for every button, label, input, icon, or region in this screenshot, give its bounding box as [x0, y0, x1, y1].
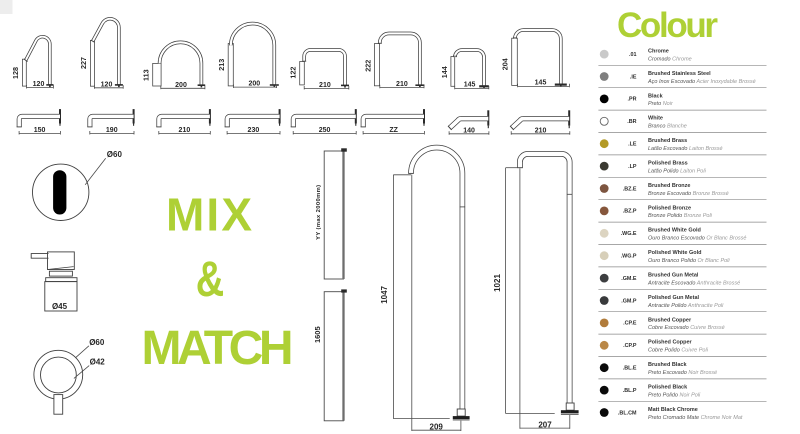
svg-text:.CP.E: .CP.E [623, 321, 637, 327]
svg-text:1605: 1605 [313, 326, 322, 343]
svg-text:1047: 1047 [380, 285, 389, 303]
svg-text:Ø45: Ø45 [52, 302, 68, 311]
svg-text:Ø60: Ø60 [107, 150, 123, 159]
svg-text:210: 210 [179, 127, 191, 134]
svg-text:Bronze Polido Bronze Poli: Bronze Polido Bronze Poli [648, 213, 713, 219]
svg-text:.GM.P: .GM.P [621, 298, 637, 304]
svg-text:Chrome: Chrome [648, 49, 669, 55]
svg-text:120: 120 [33, 81, 45, 88]
svg-text:204: 204 [501, 58, 510, 70]
svg-text:210: 210 [319, 82, 331, 89]
svg-text:Preto Escovado Noir Brossé: Preto Escovado Noir Brossé [648, 370, 717, 376]
svg-text:Brushed Brass: Brushed Brass [648, 138, 687, 144]
svg-text:250: 250 [319, 127, 331, 134]
svg-text:Preto Cromado Mate Chrome Noir: Preto Cromado Mate Chrome Noir Mat [648, 415, 743, 421]
svg-text:140: 140 [463, 127, 475, 134]
svg-text:207: 207 [538, 420, 552, 429]
svg-text:Polished Bronze: Polished Bronze [648, 205, 691, 211]
svg-text:113: 113 [142, 69, 151, 81]
svg-text:Latão Escovado Laiton Brossé: Latão Escovado Laiton Brossé [648, 146, 723, 152]
svg-text:Ø60: Ø60 [89, 338, 105, 347]
svg-text:Branco Blanche: Branco Blanche [648, 124, 687, 130]
svg-text:200: 200 [175, 82, 187, 89]
svg-text:Polished Brass: Polished Brass [648, 161, 688, 167]
svg-text:.LP: .LP [628, 164, 637, 170]
svg-text:.BZ.E: .BZ.E [623, 186, 637, 192]
svg-text:Brushed Black: Brushed Black [648, 362, 687, 368]
svg-text:Antracite Escovado Anthracite: Antracite Escovado Anthracite Brossé [647, 280, 740, 286]
svg-text:White: White [648, 116, 663, 122]
svg-text:MATCH: MATCH [142, 322, 294, 375]
svg-text:200: 200 [248, 81, 260, 88]
svg-text:209: 209 [430, 422, 444, 431]
svg-text:Ø42: Ø42 [90, 358, 106, 367]
svg-text:.CP.P: .CP.P [623, 343, 637, 349]
svg-text:Cromado Chrome: Cromado Chrome [648, 56, 692, 62]
svg-text:.GM.E: .GM.E [621, 276, 637, 282]
svg-text:Aço Inox Escovado Acier Inoxyd: Aço Inox Escovado Acier Inoxydable Bross… [647, 79, 756, 85]
svg-text:ZZ: ZZ [389, 127, 398, 134]
svg-text:Latão Polido Laiton Poli: Latão Polido Laiton Poli [648, 168, 707, 174]
svg-text:.01: .01 [629, 52, 637, 58]
svg-text:Brushed Bronze: Brushed Bronze [648, 183, 690, 189]
svg-text:.BR: .BR [627, 119, 636, 125]
svg-text:Bronze Escovado Bronze Brossé: Bronze Escovado Bronze Brossé [648, 191, 729, 197]
svg-text:.BL.CM: .BL.CM [618, 410, 637, 416]
svg-text:Brushed Copper: Brushed Copper [648, 317, 692, 323]
svg-text:.BL.E: .BL.E [623, 366, 637, 372]
svg-text:128: 128 [11, 67, 20, 79]
svg-text:Ouro Branco Polido Or Blanc Po: Ouro Branco Polido Or Blanc Poli [648, 258, 730, 264]
svg-text:Black: Black [648, 93, 664, 99]
svg-text:.BL.P: .BL.P [623, 388, 637, 394]
svg-text:122: 122 [289, 67, 298, 79]
svg-text:Polished Gun Metal: Polished Gun Metal [648, 295, 700, 301]
svg-text:.IE: .IE [630, 74, 637, 80]
svg-text:210: 210 [535, 127, 547, 134]
svg-text:Cobre Escovado Cuivre Brossé: Cobre Escovado Cuivre Brossé [648, 325, 725, 331]
svg-text:150: 150 [34, 127, 46, 134]
svg-text:230: 230 [248, 127, 260, 134]
svg-text:Brushed Stainless Steel: Brushed Stainless Steel [648, 71, 711, 77]
svg-text:Brushed White Gold: Brushed White Gold [648, 228, 701, 234]
svg-text:.WG.E: .WG.E [621, 231, 637, 237]
svg-text:Polished Copper: Polished Copper [648, 340, 693, 346]
svg-text:&: & [196, 251, 225, 307]
svg-text:.LE: .LE [628, 142, 637, 148]
svg-text:Matt Black Chrome: Matt Black Chrome [648, 407, 698, 413]
svg-text:144: 144 [440, 66, 449, 78]
svg-text:213: 213 [217, 59, 226, 71]
svg-text:Brushed Gun Metal: Brushed Gun Metal [648, 273, 699, 279]
svg-text:YY (max 2000mm): YY (max 2000mm) [316, 185, 322, 240]
svg-text:222: 222 [363, 60, 372, 72]
svg-text:227: 227 [79, 57, 88, 69]
svg-text:120: 120 [101, 81, 113, 88]
svg-text:190: 190 [106, 127, 118, 134]
svg-text:1021: 1021 [493, 274, 502, 292]
svg-text:Antracite Polido Anthracite Po: Antracite Polido Anthracite Poli [647, 303, 724, 309]
svg-text:Cobre Polido Cuivre Poli: Cobre Polido Cuivre Poli [648, 348, 709, 354]
svg-text:.PR: .PR [628, 97, 637, 103]
svg-text:Colour: Colour [617, 6, 718, 45]
svg-text:Preto Polido Noir Poli: Preto Polido Noir Poli [648, 392, 701, 398]
svg-text:Polished Black: Polished Black [648, 385, 688, 391]
svg-text:145: 145 [535, 80, 547, 87]
svg-text:MIX: MIX [166, 188, 252, 240]
svg-text:.BZ.P: .BZ.P [623, 209, 637, 215]
svg-text:Preto Noir: Preto Noir [648, 101, 674, 107]
svg-text:.WG.P: .WG.P [621, 254, 637, 260]
svg-text:145: 145 [464, 82, 476, 89]
svg-text:Polished White Gold: Polished White Gold [648, 250, 701, 256]
svg-text:210: 210 [396, 81, 408, 88]
svg-text:Ouro Branco Escovado Or Blanc: Ouro Branco Escovado Or Blanc Brossé [648, 236, 746, 242]
